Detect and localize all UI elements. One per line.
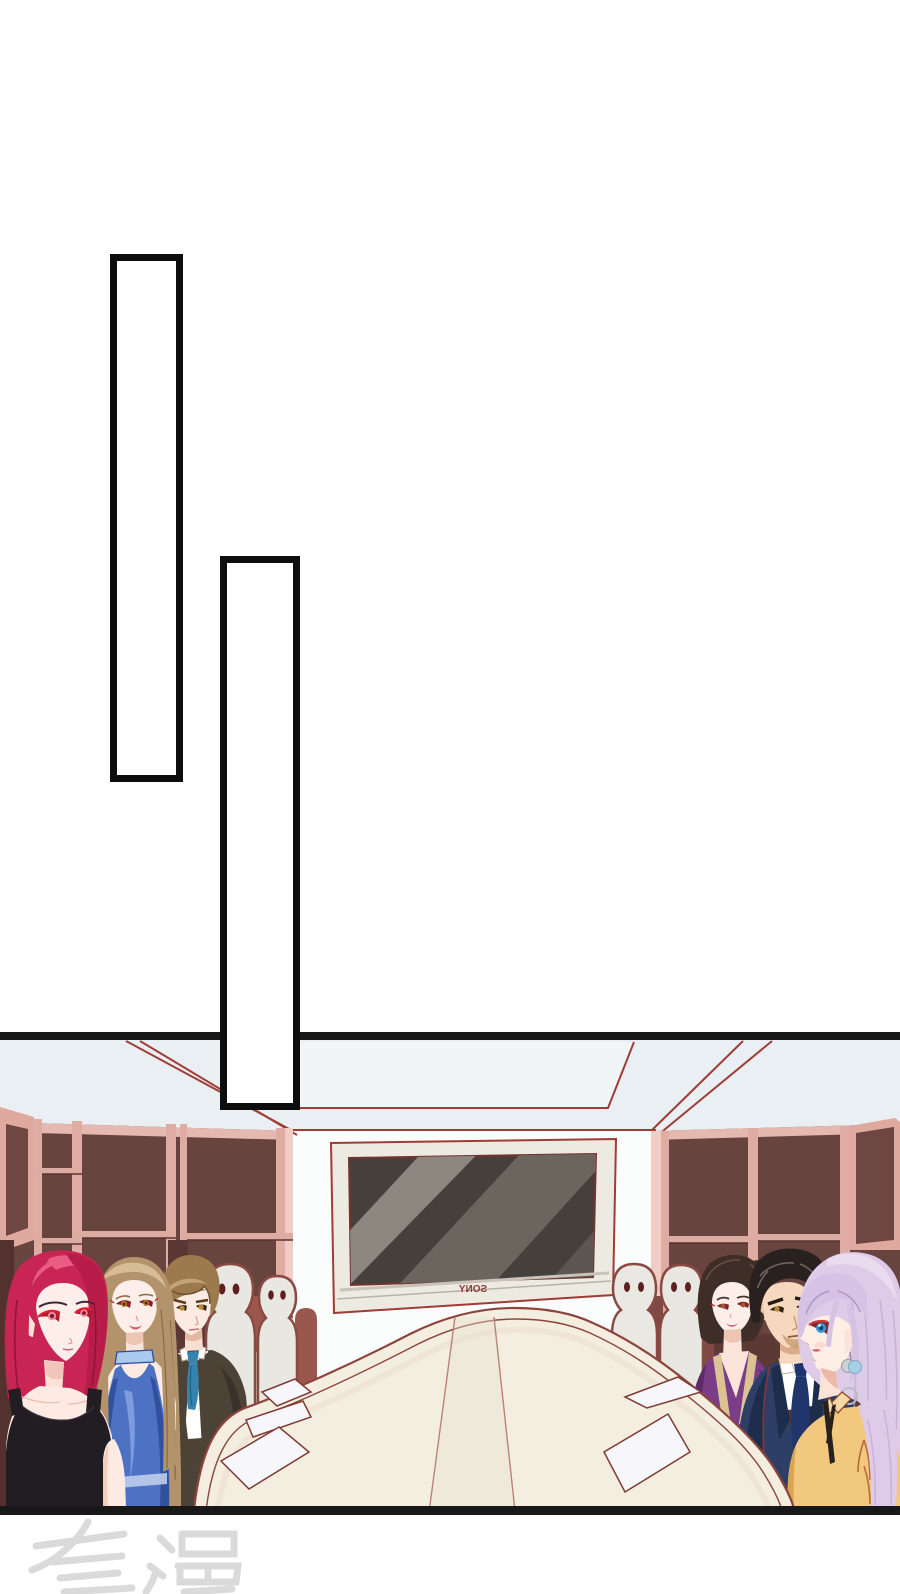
svg-text:SONY: SONY [459,1284,488,1295]
